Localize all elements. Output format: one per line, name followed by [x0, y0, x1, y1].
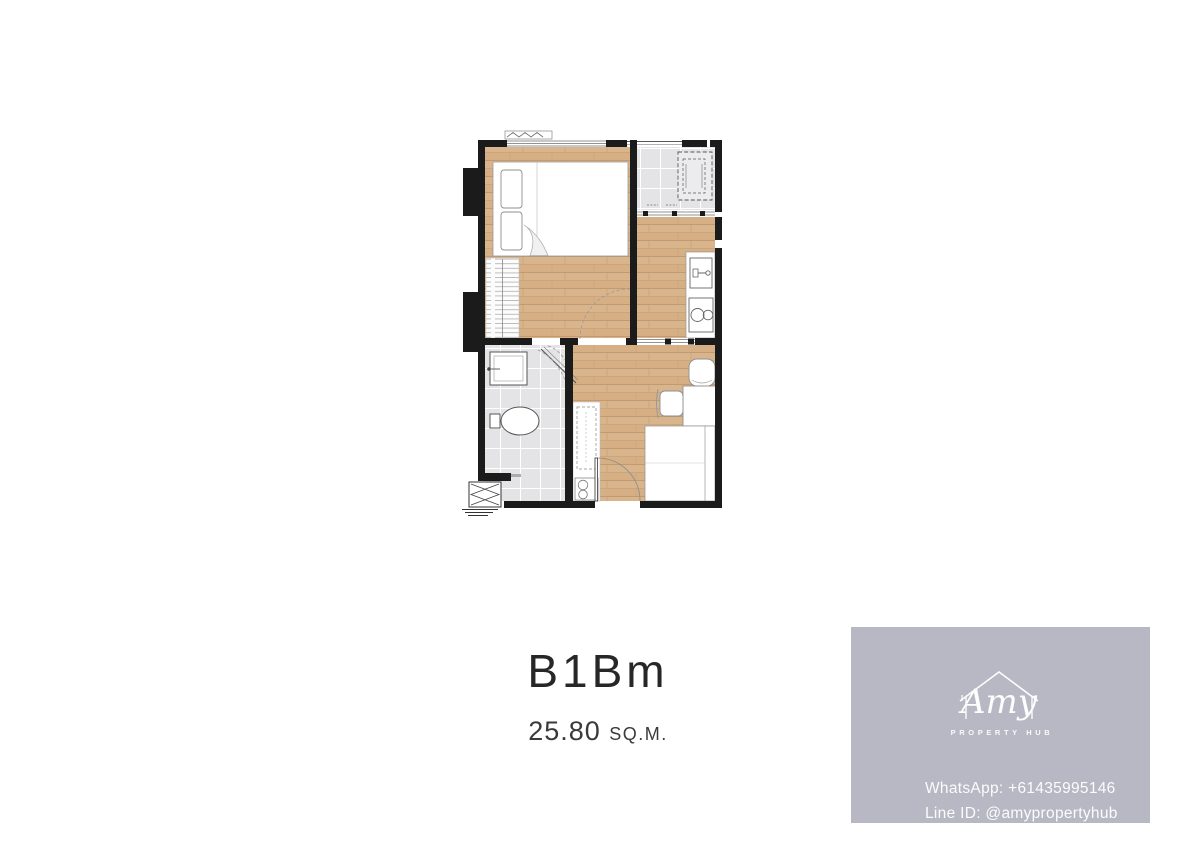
floor-plan-drawing [460, 128, 728, 518]
area-unit: SQ.M. [609, 724, 668, 744]
pipe-shaft [469, 482, 501, 507]
flyer-page: B1Bm 25.80 SQ.M. Amy PROPERTY HUB WhatsA… [0, 0, 1200, 848]
bedroom-wardrobe [486, 258, 519, 338]
bed [493, 162, 628, 256]
washing-machine [575, 478, 598, 500]
line-id-contact: Line ID: @amypropertyhub [925, 802, 1118, 827]
curtain-pelmet [505, 131, 552, 139]
title-block: B1Bm 25.80 SQ.M. [448, 648, 748, 747]
unit-area: 25.80 SQ.M. [448, 716, 748, 747]
bathroom-sink [487, 352, 527, 385]
armchair [689, 359, 715, 386]
area-value: 25.80 [528, 716, 601, 746]
ground-hatch [462, 510, 498, 516]
brand-script-name: Amy [958, 682, 1038, 722]
kitchen-living-partition [637, 338, 722, 345]
brand-tagline: PROPERTY HUB [951, 728, 1054, 737]
desk [683, 386, 716, 426]
daybed-sofa [645, 426, 715, 501]
brand-logo: Amy PROPERTY HUB [920, 655, 1080, 751]
bedroom-window [505, 140, 608, 147]
whatsapp-contact: WhatsApp: +61435995146 [925, 777, 1118, 802]
office-chair [657, 389, 684, 418]
kitchen-sink [690, 258, 712, 288]
unit-name: B1Bm [448, 648, 748, 694]
agent-card: Amy PROPERTY HUB WhatsApp: +61435995146 … [851, 627, 1150, 823]
pillow [501, 170, 522, 208]
kitchen-counter [686, 252, 715, 338]
contact-info: WhatsApp: +61435995146 Line ID: @amyprop… [925, 777, 1118, 826]
pillow [501, 212, 522, 250]
floor-plan [460, 128, 728, 518]
balcony-sliding-door [637, 210, 715, 217]
stove [689, 298, 713, 332]
ac-unit [678, 152, 712, 200]
